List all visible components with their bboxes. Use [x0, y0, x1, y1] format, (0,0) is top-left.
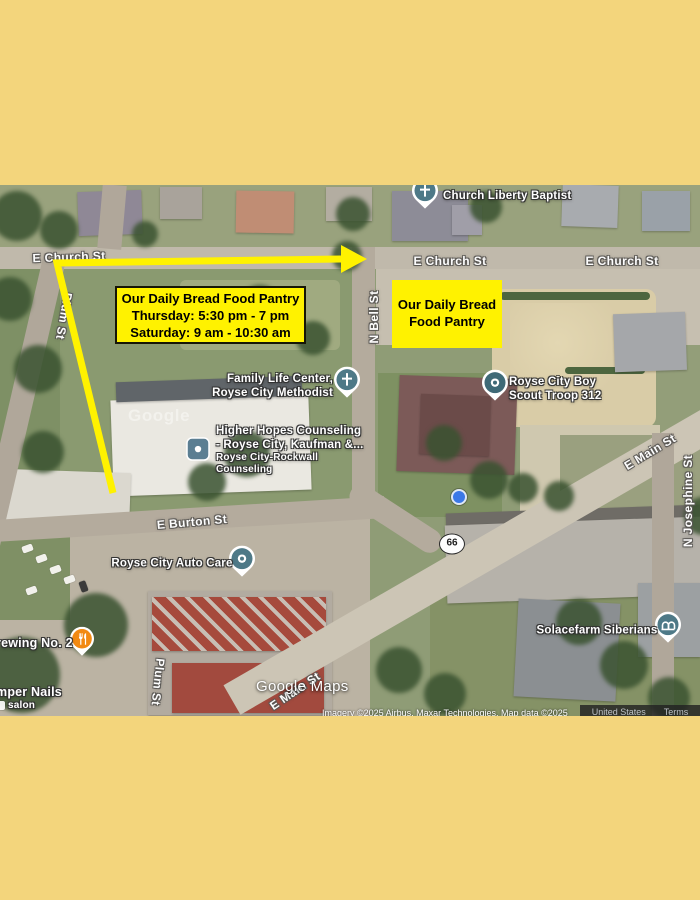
location-annotation-box: Our Daily Bread Food Pantry — [392, 280, 502, 348]
top-background-band — [0, 0, 700, 185]
bottom-background-band — [0, 716, 700, 900]
poi-label-auto-care[interactable]: Royse City Auto Care — [111, 557, 232, 571]
poi-label-church-liberty[interactable]: Church Liberty Baptist — [443, 190, 571, 204]
street-label-e-church-left: E Church St — [32, 249, 106, 266]
office-icon[interactable] — [186, 437, 210, 466]
imagery-google-watermark: Google — [128, 406, 190, 426]
kennel-pin-icon[interactable] — [655, 612, 681, 649]
church-pin-icon[interactable] — [334, 367, 360, 404]
salon-icon — [0, 701, 5, 710]
terms-link[interactable]: Terms — [664, 707, 689, 717]
street-label-e-church-right: E Church St — [585, 254, 658, 268]
poi-label-nails[interactable]: mper Nails salon — [0, 686, 62, 711]
map-attribution: Imagery ©2025 Airbus, Maxar Technologies… — [322, 705, 700, 716]
location-dot — [451, 489, 467, 505]
route-annotation-box: Our Daily Bread Food Pantry Thursday: 5:… — [115, 286, 306, 344]
poi-label-higher-hopes[interactable]: Higher Hopes Counseling - Royse City, Ka… — [216, 425, 363, 475]
poi-label-boy-scout[interactable]: Royse City Boy Scout Troop 312 — [509, 376, 601, 403]
poi-label-brewing[interactable]: rewing No. 2 — [0, 637, 73, 651]
church-pin-icon[interactable] — [412, 185, 438, 215]
street-label-n-josephine: N Josephine St — [681, 455, 695, 547]
route-66-shield: 66 — [439, 534, 465, 555]
google-maps-watermark: Google Maps — [256, 678, 349, 695]
attribution-links: United States Terms Privacy — [580, 705, 700, 717]
place-pin-icon[interactable] — [482, 370, 508, 407]
region-label: United States — [592, 707, 646, 717]
street-label-e-church-mid: E Church St — [413, 254, 486, 268]
poi-label-family-life-center[interactable]: Family Life Center, Royse City Methodist — [212, 373, 333, 400]
poi-label-solacefarm[interactable]: Solacefarm Siberians — [537, 624, 658, 638]
place-pin-icon[interactable] — [229, 546, 255, 583]
imagery-credit: Imagery ©2025 Airbus, Maxar Technologies… — [322, 708, 568, 717]
map-viewport[interactable]: Google E Church St E Church St E Church … — [0, 185, 700, 716]
restaurant-icon[interactable] — [70, 627, 94, 662]
street-label-n-bell: N Bell St — [367, 291, 381, 344]
